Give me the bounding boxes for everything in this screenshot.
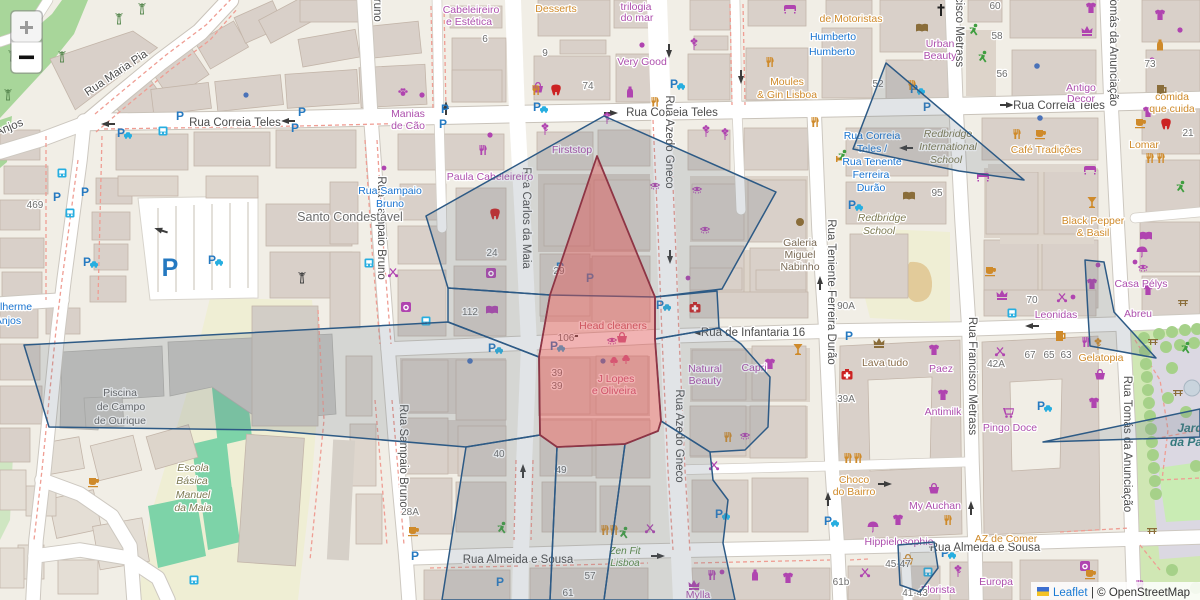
svg-text:28A: 28A [401,507,419,518]
svg-text:Casa Pélys: Casa Pélys [1114,278,1167,290]
svg-text:de Cão: de Cão [391,120,425,132]
svg-text:Lomar: Lomar [1129,139,1159,151]
svg-text:Very Good: Very Good [617,56,667,68]
svg-text:Escola: Escola [177,462,209,474]
svg-text:comida: comida [1155,91,1189,103]
svg-text:P: P [439,117,447,131]
svg-text:95: 95 [931,188,943,199]
svg-text:Rua Teniente Ferreira Durão: Rua Teniente Ferreira Durão [825,219,837,365]
svg-text:P: P [441,102,449,116]
svg-text:Leaflet: Leaflet [1053,587,1088,599]
svg-text:que cuida: que cuida [1149,103,1195,115]
svg-text:Black Pepper: Black Pepper [1062,215,1125,227]
svg-text:65: 65 [1043,350,1055,361]
svg-text:Antimilk: Antimilk [925,406,963,418]
svg-text:Paez: Paez [929,363,953,375]
svg-text:P: P [81,185,89,199]
svg-text:Gelatopia: Gelatopia [1079,352,1124,364]
svg-text:P: P [845,329,853,343]
svg-text:P: P [53,190,61,204]
svg-text:Decor: Decor [1067,93,1096,105]
svg-text:Desserts: Desserts [535,3,576,15]
svg-text:Galeria: Galeria [783,237,817,249]
svg-text:Anjos: Anjos [0,315,21,327]
svg-text:Europa: Europa [979,576,1013,588]
svg-text:Rua Tomás da Anunciação: Rua Tomás da Anunciação [1107,0,1119,106]
svg-text:6: 6 [482,34,488,45]
svg-text:Ferreira: Ferreira [853,169,890,181]
svg-text:74: 74 [582,81,594,92]
svg-text:9: 9 [542,48,548,59]
svg-text:School: School [863,225,896,237]
svg-text:P: P [670,77,678,91]
svg-text:P: P [533,100,541,114]
svg-text:P: P [291,121,299,135]
svg-text:ampaio Bruno: ampaio Bruno [371,0,383,22]
svg-text:Humberto: Humberto [810,31,856,43]
svg-text:56: 56 [996,69,1008,80]
svg-text:90A: 90A [837,301,855,312]
svg-text:21: 21 [1182,128,1194,139]
svg-text:61b: 61b [833,577,850,588]
svg-text:P: P [117,126,125,140]
svg-text:469: 469 [27,200,44,211]
svg-text:Rua Sampaio: Rua Sampaio [358,185,422,197]
svg-text:Rua Francisco Metrass: Rua Francisco Metrass [966,317,978,435]
svg-text:do mar: do mar [621,12,654,24]
svg-text:AZ de Comer: AZ de Comer [975,533,1038,545]
svg-text:Redbridge: Redbridge [858,212,907,224]
svg-text:67: 67 [1024,350,1036,361]
svg-text:Pingo Doce: Pingo Doce [983,422,1037,434]
svg-text:Café Tradições: Café Tradições [1011,144,1082,156]
svg-text:My Auchan: My Auchan [909,500,961,512]
svg-text:P: P [411,549,419,563]
svg-text:Beauty: Beauty [924,50,957,62]
svg-text:39A: 39A [837,394,855,405]
svg-text:da Maia: da Maia [174,502,212,514]
svg-text:Rua Tomás da Anunciação: Rua Tomás da Anunciação [1121,376,1133,513]
svg-text:Abreu: Abreu [1124,308,1152,320]
svg-text:Urban: Urban [926,38,955,50]
svg-text:Moules: Moules [770,76,804,88]
svg-text:& Basil: & Basil [1077,227,1110,239]
svg-text:| © OpenStreetMap: | © OpenStreetMap [1091,587,1190,599]
svg-text:Choco: Choco [839,474,870,486]
svg-text:Durão: Durão [857,182,886,194]
svg-text:Leonidas: Leonidas [1035,309,1078,321]
svg-text:Santo Condestável: Santo Condestável [297,210,403,224]
svg-text:Básica: Básica [176,475,208,487]
svg-text:P: P [1037,399,1045,413]
svg-text:uilherme: uilherme [0,301,32,313]
svg-text:P: P [824,514,832,528]
svg-text:58: 58 [991,31,1003,42]
svg-text:e Estética: e Estética [446,16,492,28]
svg-text:P: P [208,253,216,267]
svg-text:Manias: Manias [391,108,425,120]
svg-text:63: 63 [1060,350,1072,361]
svg-text:Bruno: Bruno [376,198,404,210]
svg-text:73: 73 [1144,59,1156,70]
svg-text:70: 70 [1026,295,1038,306]
svg-text:Lava tudo: Lava tudo [862,357,908,369]
svg-text:Manuel: Manuel [176,489,211,501]
svg-text:60: 60 [989,1,1001,12]
svg-text:42A: 42A [987,359,1005,370]
svg-text:Cabeleireiro: Cabeleireiro [443,4,500,16]
svg-text:P: P [298,105,306,119]
svg-text:Miguel: Miguel [785,249,816,261]
svg-text:de Motoristas: de Motoristas [819,13,882,25]
svg-text:Rua Correia Teles: Rua Correia Teles [189,117,281,129]
svg-text:P: P [162,254,179,282]
svg-text:Nabinho: Nabinho [780,261,819,273]
svg-text:Humberto: Humberto [809,46,855,58]
svg-text:do Bairro: do Bairro [833,486,876,498]
svg-text:P: P [176,109,184,123]
svg-text:P: P [848,198,856,212]
svg-text:P: P [83,255,91,269]
svg-text:& Gin Lisboa: & Gin Lisboa [757,89,817,101]
